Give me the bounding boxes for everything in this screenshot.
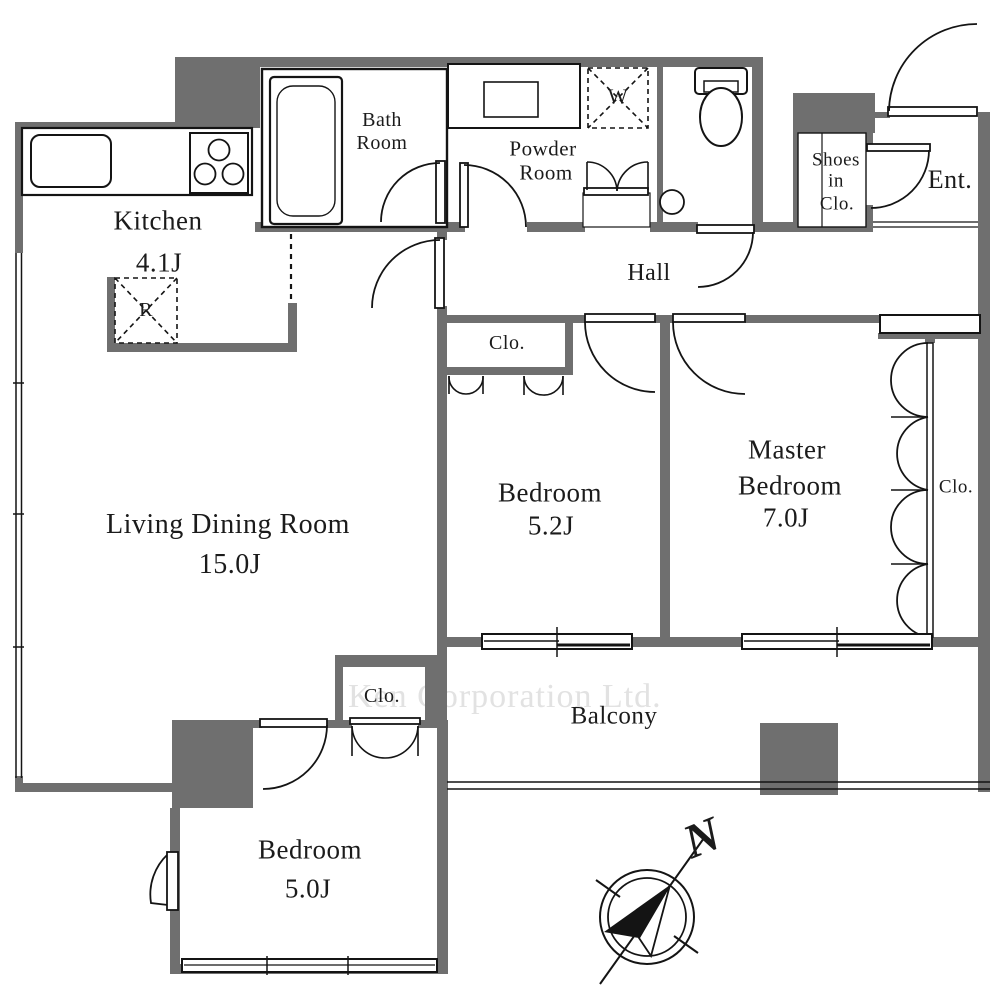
living-window bbox=[13, 253, 24, 778]
casement-window bbox=[150, 852, 178, 910]
master-bedroom-label-line2: Bedroom bbox=[738, 473, 842, 500]
shoes-closet-label-line1: Shoes bbox=[812, 151, 860, 170]
toilet-door bbox=[697, 225, 754, 287]
hall-shelf bbox=[880, 315, 980, 333]
compass bbox=[596, 838, 704, 984]
shoes-closet-label-line3: Clo. bbox=[820, 195, 854, 214]
balcony-railing bbox=[447, 782, 990, 789]
refrigerator-label: R bbox=[139, 300, 153, 320]
bath-room-outline bbox=[262, 69, 447, 227]
stove bbox=[190, 133, 248, 193]
entrance-step bbox=[873, 222, 978, 227]
bedroom-50-label: Bedroom bbox=[258, 837, 362, 864]
balcony-label: Balcony bbox=[571, 704, 658, 729]
bedroom-52-closet-doors bbox=[449, 376, 563, 395]
kitchen-counter bbox=[22, 128, 252, 195]
shoes-closet-label-line2: in bbox=[828, 172, 844, 191]
sliding-window bbox=[742, 627, 932, 657]
hall-label: Hall bbox=[627, 261, 670, 285]
bedroom-52-size-label: 5.2J bbox=[528, 513, 574, 540]
bedroom-52-door bbox=[585, 314, 655, 392]
bedroom-50-closet-doors bbox=[350, 718, 420, 758]
living-room-door bbox=[372, 238, 444, 308]
kitchen-size-label: 4.1J bbox=[136, 250, 182, 277]
bath-room-label-line2: Room bbox=[357, 133, 408, 153]
master-closet-label: Clo. bbox=[939, 478, 973, 497]
bedroom-52-closet-label: Clo. bbox=[489, 333, 525, 353]
washer-label: W bbox=[608, 87, 628, 108]
master-bedroom-door bbox=[673, 314, 745, 394]
corner-basin bbox=[660, 190, 684, 214]
powder-room-door bbox=[460, 163, 526, 227]
kitchen-label: Kitchen bbox=[114, 208, 203, 235]
bedroom-window bbox=[182, 956, 437, 975]
master-bedroom-label-line1: Master bbox=[748, 437, 826, 464]
bath-room-label-line1: Bath bbox=[362, 110, 402, 130]
living-dining-size-label: 15.0J bbox=[199, 551, 261, 579]
powder-room-label-line1: Powder bbox=[509, 139, 576, 160]
powder-counter bbox=[448, 64, 580, 128]
floor-plan: Ken Corporation Ltd. bbox=[0, 0, 1000, 1000]
linen-cabinet-doors bbox=[583, 162, 650, 227]
living-dining-label: Living Dining Room bbox=[106, 511, 350, 539]
bedroom-50-size-label: 5.0J bbox=[285, 876, 331, 903]
sliding-window bbox=[482, 627, 632, 657]
bedroom-50-door bbox=[260, 719, 327, 789]
bedroom-52-label: Bedroom bbox=[498, 480, 602, 507]
shoes-closet-door bbox=[867, 144, 930, 208]
toilet bbox=[660, 68, 747, 214]
bedroom-50-closet-label: Clo. bbox=[364, 686, 400, 706]
entrance-door bbox=[888, 24, 977, 116]
master-bedroom-size-label: 7.0J bbox=[763, 505, 809, 532]
entrance-label: Ent. bbox=[928, 167, 973, 193]
powder-room-label-line2: Room bbox=[519, 163, 572, 184]
master-closet-doors bbox=[891, 343, 933, 637]
bathtub bbox=[270, 77, 342, 224]
